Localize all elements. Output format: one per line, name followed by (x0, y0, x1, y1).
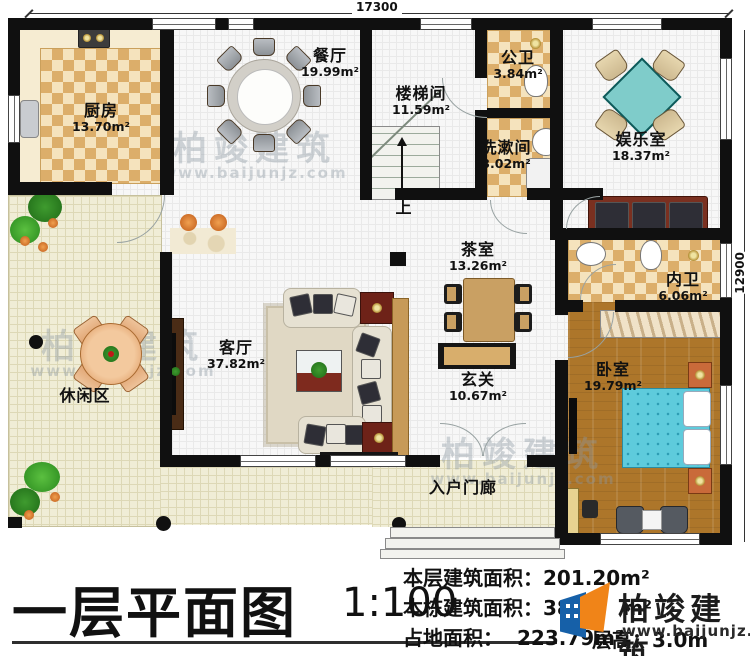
wall (160, 252, 172, 466)
wall (550, 228, 732, 240)
column (8, 517, 22, 528)
wall (555, 360, 568, 545)
room-label-tea-room: 茶室13.26m² (438, 242, 518, 272)
wall (487, 108, 550, 118)
room-label-stairwell: 楼梯间11.59m² (378, 86, 464, 116)
stove-icon (78, 28, 110, 48)
stepping-stone-icon (180, 214, 197, 231)
coffee-table (296, 350, 342, 392)
room-label-dining: 餐厅19.99m² (290, 48, 370, 78)
chair-icon (444, 284, 462, 304)
room-label-foyer: 玄关10.67m² (438, 372, 518, 402)
window (240, 455, 316, 467)
sofa-right (352, 326, 392, 428)
room-label-leisure: 休闲区 (45, 388, 125, 405)
chair-icon (616, 506, 644, 534)
window (720, 58, 732, 140)
entry-steps (385, 538, 560, 549)
marble-passage (170, 228, 236, 254)
tv-bedroom (569, 398, 577, 454)
chair-icon (514, 312, 532, 332)
chair-icon (253, 38, 275, 56)
room-label-porch: 入户门廊 (415, 480, 511, 497)
chair-icon (660, 506, 688, 534)
window (600, 533, 700, 545)
window (330, 455, 406, 467)
window (8, 95, 20, 143)
entry-steps (390, 527, 555, 538)
column (29, 335, 43, 349)
window (720, 243, 732, 298)
chair-icon (444, 312, 462, 332)
window (592, 18, 662, 30)
wall (700, 533, 732, 545)
room-label-living: 客厅37.82m² (192, 340, 280, 370)
room-label-ensuite-bath: 内卫6.06m² (648, 272, 718, 302)
side-table (360, 292, 394, 324)
window (720, 385, 732, 465)
nightstand (688, 468, 712, 494)
column (390, 252, 406, 266)
brand-name: 柏竣建筑 (618, 584, 750, 656)
column (156, 516, 171, 531)
shower-icon (688, 250, 699, 261)
dimension-right-value: 12900 (733, 252, 747, 294)
wall (8, 182, 112, 195)
brand-logo: 柏竣建筑 www.baijunjz.com (556, 582, 750, 650)
room-label-kitchen: 厨房13.70m² (55, 103, 147, 133)
window (228, 18, 254, 30)
dimension-top-value: 17300 (352, 0, 402, 14)
wall (555, 533, 600, 545)
sofa-bottom (298, 416, 366, 454)
wall (160, 18, 174, 195)
window (420, 18, 472, 30)
chair-icon (514, 284, 532, 304)
page-title: 一层平面图 (12, 568, 297, 648)
window (152, 18, 216, 30)
brand-url: www.baijunjz.com (622, 622, 750, 640)
chair-icon (253, 134, 275, 152)
brand-logo-icon (556, 582, 614, 644)
chair-icon (303, 85, 321, 107)
tv-partition (392, 298, 409, 457)
leisure-table (80, 323, 142, 385)
room-label-bedroom: 卧室19.79m² (570, 362, 656, 392)
kitchen-sink-icon (20, 100, 39, 138)
toilet-icon (640, 240, 662, 270)
stairs-up-label: 上 (392, 200, 416, 217)
wardrobe (600, 310, 724, 338)
wall (555, 228, 568, 315)
sideboard (438, 343, 516, 369)
sofa-top (283, 288, 361, 328)
wall (527, 455, 555, 467)
nightstand (688, 362, 712, 388)
stool (582, 500, 598, 518)
bed (622, 388, 710, 468)
room-label-entertainment: 娱乐室18.37m² (596, 132, 686, 162)
chair-icon (207, 85, 225, 107)
room-label-public-bath: 公卫3.84m² (486, 50, 550, 80)
side-table (362, 422, 396, 454)
room-label-wash-room: 洗漱间3.02m² (470, 140, 542, 170)
stepping-stone-icon (210, 214, 227, 231)
stairs-up-arrow-icon (401, 140, 403, 192)
leisure-deck-strip (160, 467, 372, 525)
small-table (642, 510, 662, 530)
tea-table (463, 278, 515, 342)
wall (360, 18, 372, 200)
wash-basin-icon (576, 242, 606, 266)
floor-plan-page: 柏竣建筑 www.baijunjz.com 柏竣建筑 www.baijunjz.… (0, 0, 750, 656)
entry-steps (380, 549, 565, 559)
